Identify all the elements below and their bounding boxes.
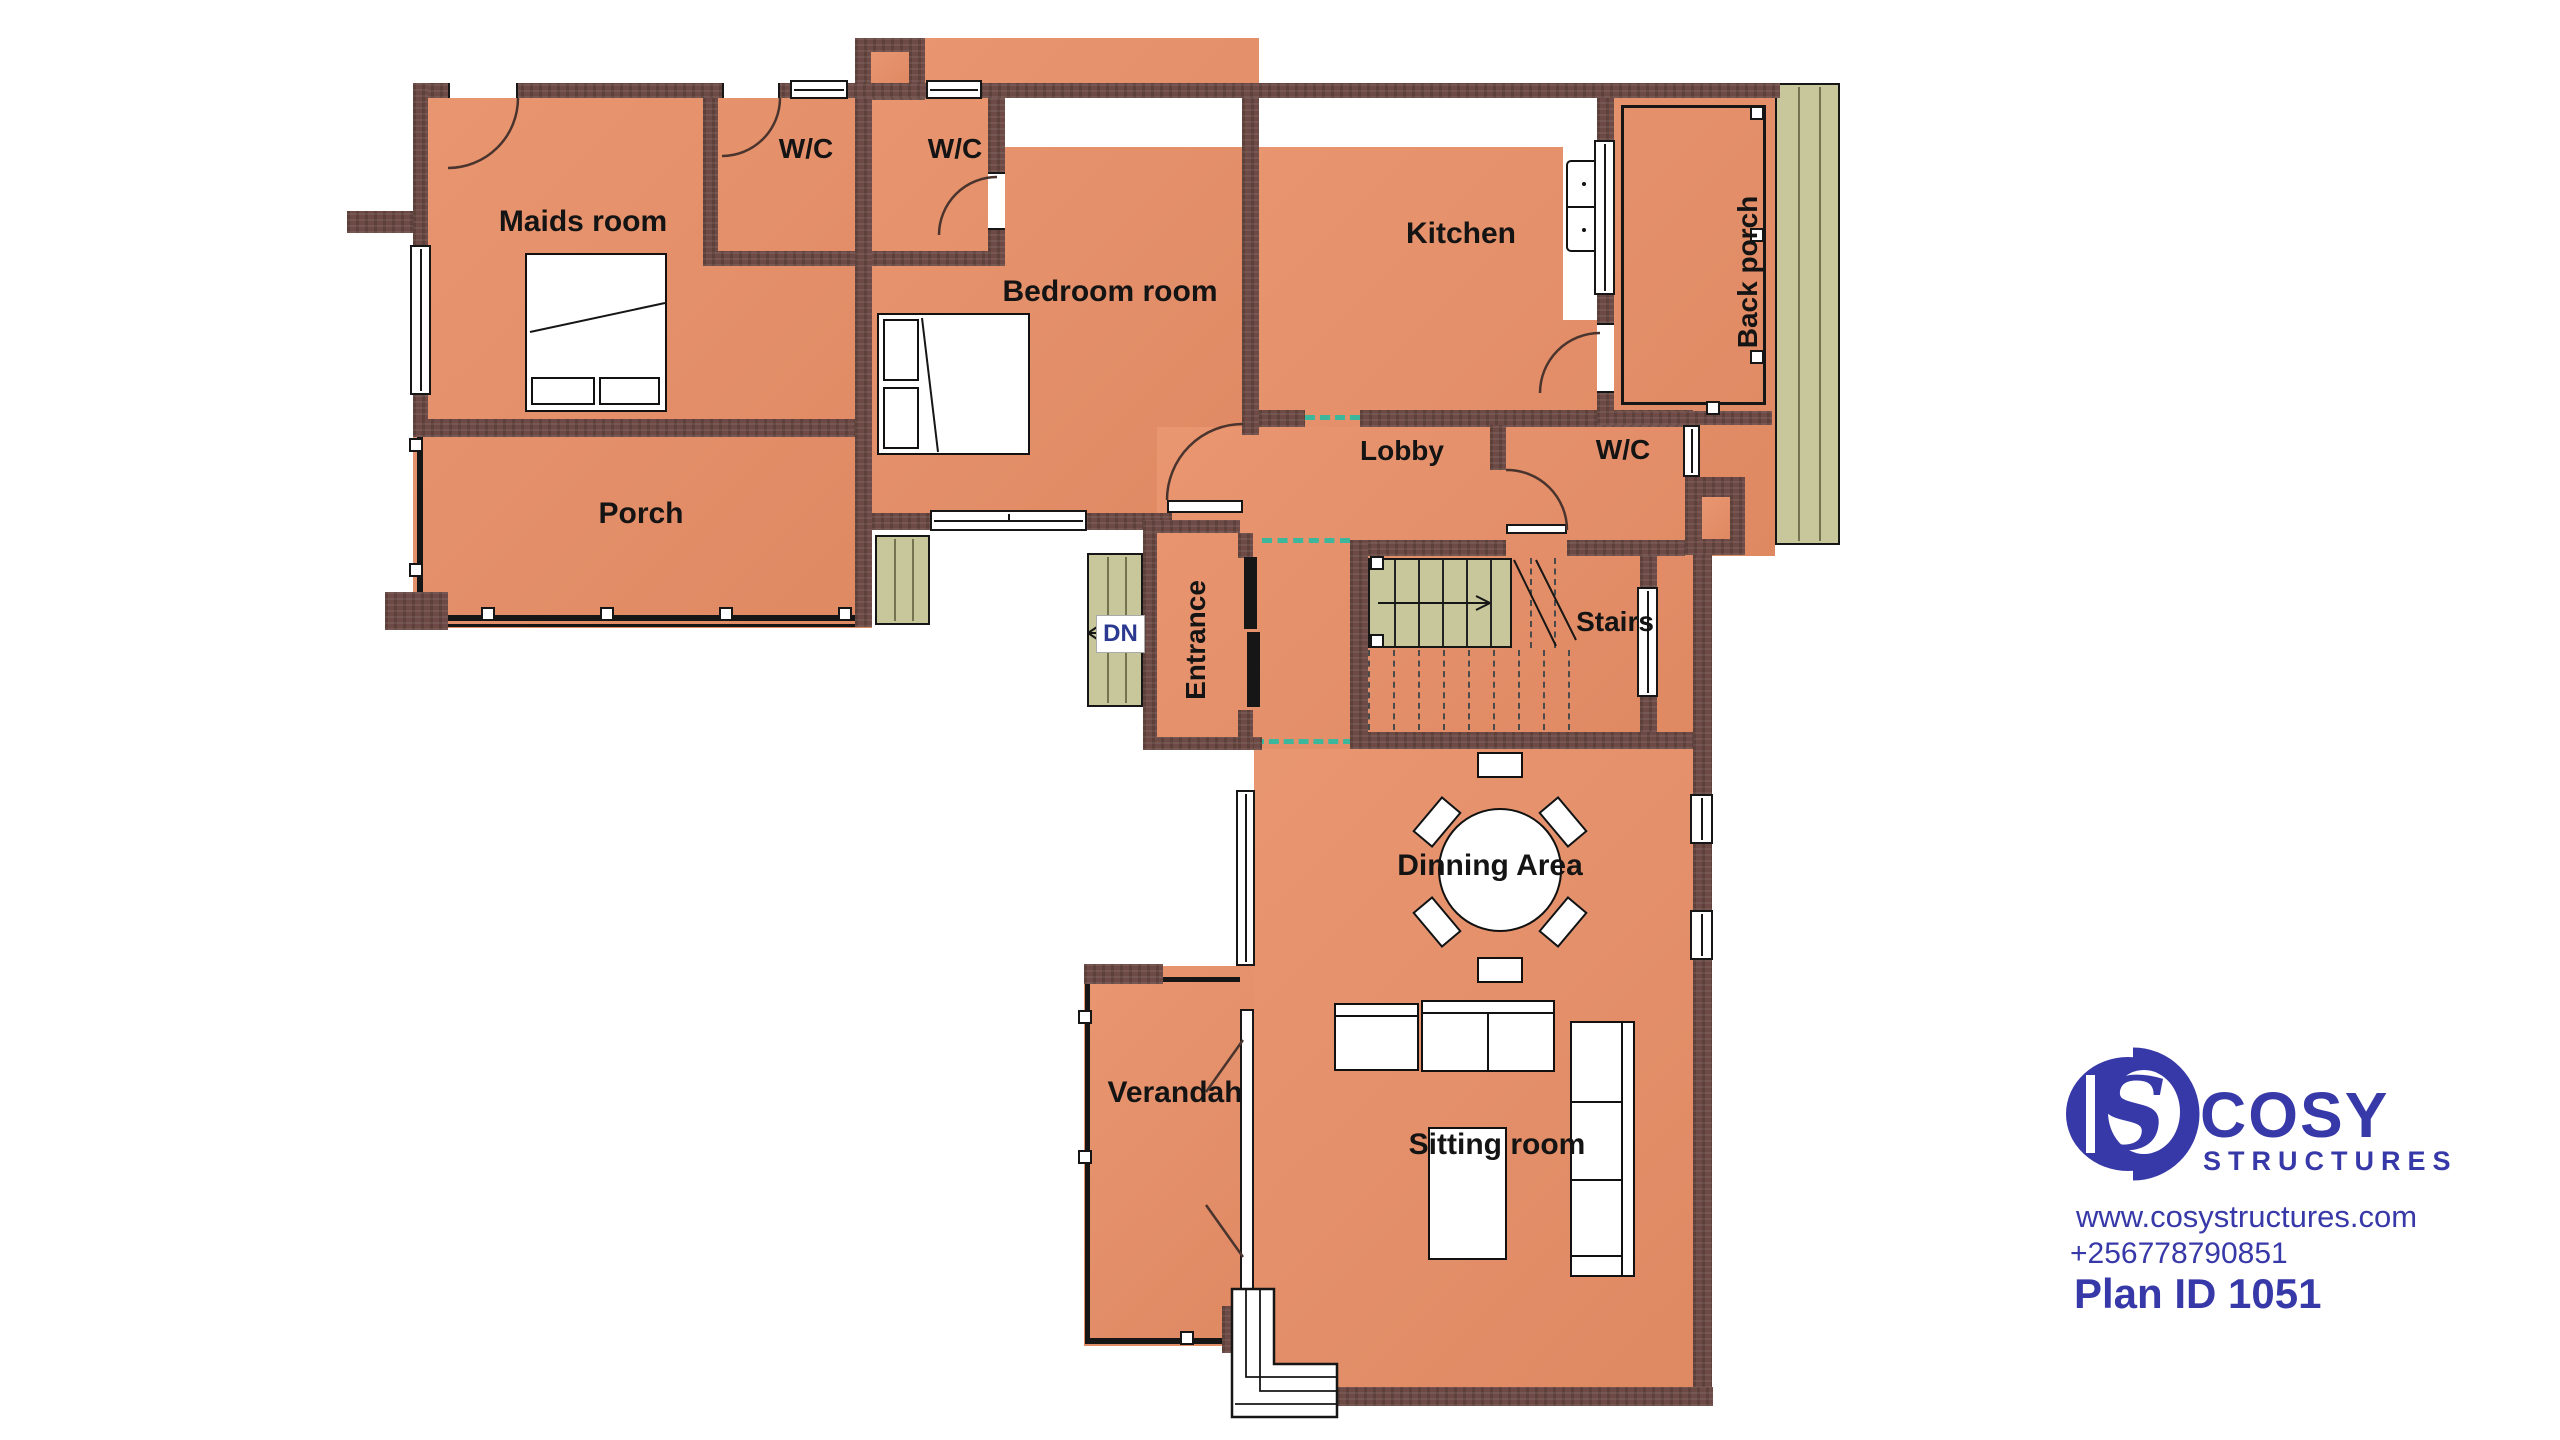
door-sill-bedroom: [1167, 500, 1243, 513]
window-wc1: [790, 80, 848, 99]
brand-sub: STRUCTURES: [2203, 1146, 2458, 1177]
back-porch-post: [1750, 106, 1764, 120]
room-label-maids: Maids room: [499, 205, 667, 239]
verandah-post: [1078, 1150, 1092, 1164]
bed-maids-pillow: [599, 377, 660, 405]
opening-dash-hallway: [1262, 538, 1350, 543]
wall-landing-right: [1567, 540, 1685, 556]
steps-porch-side: [875, 535, 930, 625]
verandah-post: [1180, 1331, 1194, 1345]
window-dining-left: [1236, 790, 1255, 966]
kitchen-counter-band: [1259, 98, 1563, 147]
logo-monogram: S: [2095, 1055, 2167, 1173]
room-label-dining: Dinning Area: [1397, 849, 1583, 883]
room-label-entrance: Entrance: [1180, 580, 1212, 700]
room-label-back-porch: Back porch: [1732, 196, 1764, 349]
door-gap-maids: [448, 83, 518, 98]
porch-post: [719, 607, 733, 621]
room-label-bedroom: Bedroom room: [1002, 275, 1217, 309]
back-porch-post: [1706, 401, 1720, 415]
door-gap-wc2: [988, 172, 1005, 230]
wall-center-divider: [855, 98, 872, 627]
dining-chair: [1477, 752, 1523, 778]
wall-wc2-right-lower: [988, 230, 1005, 266]
bed-maids-pillow: [531, 377, 595, 405]
porch-post: [409, 563, 423, 577]
stairs-lower-flight-dashed: [1368, 650, 1572, 730]
door-opening-verandah: [1240, 1009, 1254, 1306]
wall-right-exterior-a: [1693, 555, 1712, 794]
wall-kitchen-right-c: [1597, 393, 1614, 425]
room-label-wc2: W/C: [928, 133, 982, 165]
wall-top-exterior: [413, 83, 1780, 98]
opening-dash-lobby: [1305, 415, 1360, 420]
dining-chair: [1477, 957, 1523, 983]
wall-left-stub: [347, 211, 413, 233]
wall-maids-porch: [413, 419, 872, 437]
porch-post: [600, 607, 614, 621]
window-kitchen: [1594, 140, 1615, 295]
wall-wc2-right-upper: [988, 98, 1005, 172]
room-label-porch: Porch: [598, 497, 683, 531]
wall-stairs-left: [1350, 540, 1368, 749]
wall-right-exterior-b: [1693, 844, 1712, 910]
window-maids: [410, 245, 431, 395]
brand-website: www.cosystructures.com: [2076, 1199, 2417, 1235]
entrance-door-leaf: [1244, 557, 1257, 629]
wall-lobby-top-stub: [1259, 410, 1305, 427]
room-label-wc1: W/C: [779, 133, 833, 165]
bed-bedroom-pillow: [883, 319, 919, 381]
window-dining-right-2: [1690, 910, 1713, 960]
chimney-flue: [871, 52, 909, 86]
wall-verandah-top: [1084, 964, 1163, 984]
entrance-door-leaf: [1247, 632, 1260, 707]
wall-right-exterior-c: [1693, 960, 1712, 1406]
window-wc2: [926, 80, 982, 99]
cosy-logo-mark: S: [2066, 1055, 2191, 1173]
wall-back-porch-bottom: [1614, 411, 1772, 425]
down-label: DN: [1103, 620, 1138, 648]
brand-phone: +256778790851: [2070, 1237, 2288, 1271]
bed-bedroom-pillow: [883, 387, 919, 449]
bedroom-closet: [1005, 98, 1242, 147]
wall-kitchen-right-b: [1597, 295, 1614, 323]
window-stairs: [1637, 587, 1658, 697]
sofa-three-seat: [1421, 1000, 1555, 1072]
room-label-stairs: Stairs: [1576, 606, 1654, 638]
porch-post: [838, 607, 852, 621]
room-label-wc3: W/C: [1596, 434, 1650, 466]
wall-verandah-corner: [1222, 1306, 1254, 1353]
wall-wc3-stub: [1490, 425, 1506, 470]
stair-newel-post: [1370, 556, 1384, 570]
door-gap-wc1: [722, 83, 780, 98]
wall-entrance-right-a: [1238, 533, 1253, 558]
wall-maids-wc1: [703, 98, 718, 266]
down-label-box: DN: [1096, 615, 1145, 653]
brand-name: COSY: [2200, 1078, 2389, 1152]
stairs-upper-flight: [1368, 558, 1512, 648]
verandah-top-beam: [1163, 977, 1240, 982]
door-gap-kitchen: [1597, 323, 1614, 393]
door-leaf-wc3: [1506, 524, 1567, 534]
stairs-winder: [1512, 558, 1572, 648]
right-notch-inner: [1702, 497, 1730, 539]
porch-post: [481, 607, 495, 621]
stair-newel-post: [1370, 634, 1384, 648]
room-label-kitchen: Kitchen: [1406, 217, 1516, 251]
wall-porch-corner: [385, 592, 448, 630]
room-label-verandah: Verandah: [1107, 1076, 1242, 1110]
plan-id: Plan ID 1051: [2074, 1270, 2321, 1318]
wall-landing-left: [1368, 540, 1506, 556]
wall-stairs-right-b: [1640, 697, 1657, 732]
wall-entrance-right-b: [1238, 710, 1253, 750]
verandah-post: [1078, 1010, 1092, 1024]
steps-back-porch: [1775, 83, 1840, 545]
wall-stairs-bottom: [1368, 732, 1693, 749]
wall-entrance-left: [1143, 533, 1157, 750]
porch-post: [409, 438, 423, 452]
wall-bedroom-right: [1242, 98, 1259, 435]
wall-wc-bottom: [703, 251, 1005, 266]
back-porch-post: [1750, 350, 1764, 364]
floor-verandah: [1084, 966, 1254, 1346]
window-dining-right-1: [1690, 794, 1713, 844]
verandah-left-edge: [1085, 984, 1090, 1344]
room-label-sitting: Sitting room: [1409, 1128, 1586, 1162]
porch-bottom-edge2: [413, 624, 872, 627]
window-bedroom: [930, 510, 1087, 531]
porch-left-edge: [417, 433, 423, 618]
sofa-loveseat: [1334, 1003, 1419, 1071]
wall-entrance-top: [1143, 520, 1240, 533]
verandah-bottom-edge: [1085, 1338, 1224, 1344]
wall-stairs-right-a: [1640, 556, 1657, 587]
wall-kitchen-right-a: [1597, 98, 1614, 140]
floor-plan-canvas: S Maids room W/C W/C Bedroom room Kitche…: [0, 0, 2560, 1440]
room-label-lobby: Lobby: [1360, 435, 1444, 467]
window-wc3: [1683, 425, 1700, 477]
wall-sitting-bottom: [1337, 1387, 1713, 1406]
